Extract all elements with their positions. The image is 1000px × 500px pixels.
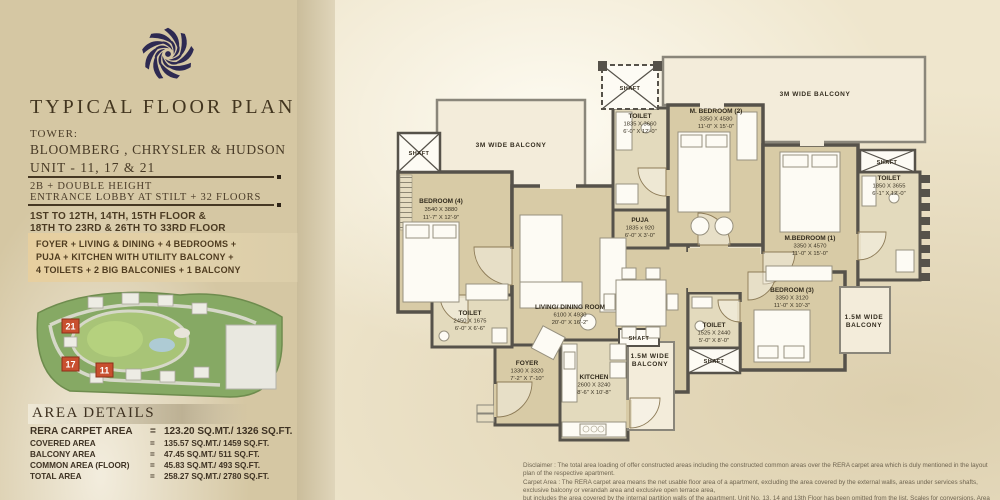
divider-line: [28, 176, 274, 178]
dim-puja-ft: 6'-0" X 3'-0": [625, 233, 655, 239]
area-row-value: 45.83 SQ.MT./ 493 SQ.FT.: [164, 461, 292, 470]
area-row-value: 258.27 SQ.MT./ 2780 SQ.FT.: [164, 472, 292, 481]
dining-table: [616, 280, 666, 326]
dim-mbedroom2-mm: 3350 X 4580: [700, 117, 733, 123]
unit-line: UNIT - 11, 17 & 21: [30, 160, 286, 176]
config-line: ENTRANCE LOBBY AT STILT + 32 FLOORS: [30, 192, 261, 203]
label-shaft-right: SHAFT: [877, 160, 898, 166]
site-pool: [149, 338, 175, 352]
basin: [692, 297, 712, 308]
area-row-label: TOTAL AREA: [30, 472, 148, 481]
floors-line: 1ST TO 12TH, 14TH, 15TH FLOOR &: [30, 211, 226, 223]
label-balcony-b3-2: BALCONY: [846, 322, 882, 329]
dim-foyer-ft: 7'-2" X 7'-10": [510, 376, 543, 382]
label-toilet-left: TOILET: [459, 310, 482, 317]
floor-plan-drawing: 3M WIDE BALCONY 3M WIDE BALCONY SHAFT SH…: [335, 0, 1000, 500]
dim-puja-mm: 1835 x 920: [626, 226, 655, 232]
equals-sign: =: [150, 426, 162, 437]
unit-marker-11-label: 11: [100, 366, 110, 376]
label-shaft-kitchen: SHAFT: [629, 336, 650, 342]
area-row-label: COVERED AREA: [30, 439, 148, 448]
kitchen-sink: [564, 352, 575, 369]
tower-block: TOWER: BLOOMBERG , CHRYSLER & HUDSON UNI…: [30, 128, 286, 176]
brand-logo-icon: [134, 20, 202, 88]
label-balcony-kitchen-2: BALCONY: [632, 361, 668, 368]
stove: [580, 424, 606, 435]
wardrobe-mbedroom2: [737, 112, 757, 160]
dim-toilet-left-mm: 2450 X 1675: [454, 319, 487, 325]
dim-living-ft: 20'-0" X 16'-2": [552, 320, 589, 326]
dim-toilet-left-ft: 6'-0" X 6'-6": [455, 326, 485, 332]
config-block: 2B + DOUBLE HEIGHT ENTRANCE LOBBY AT STI…: [30, 181, 261, 203]
area-row-label: RERA CARPET AREA: [30, 426, 148, 437]
basin: [492, 328, 507, 343]
feature-line: 4 TOILETS + 2 BIG BALCONIES + 1 BALCONY: [36, 264, 298, 277]
unit-marker-21-label: 21: [65, 322, 75, 332]
wardrobe-mbedroom1: [766, 266, 832, 281]
tower-label: TOWER:: [30, 128, 286, 140]
dim-mbedroom1-mm: 3350 X 4570: [794, 244, 827, 250]
area-row-label: BALCONY AREA: [30, 450, 148, 459]
dim-toilet-right-mm: 1850 X 3655: [873, 184, 906, 190]
dim-toilet-top-ft: 6'-0" X 12'-0": [623, 129, 656, 135]
appliance: [610, 362, 626, 378]
divider-line: [28, 204, 274, 206]
floor-plan-brochure: TYPICAL FLOOR PLAN TOWER: BLOOMBERG , CH…: [0, 0, 1000, 500]
site-lawn: [87, 321, 143, 357]
feature-line: PUJA + KITCHEN WITH UTILITY BALCONY +: [36, 251, 298, 264]
area-details-table: RERA CARPET AREA = 123.20 SQ.MT./ 1326 S…: [30, 426, 292, 481]
area-row-value: 47.45 SQ.MT./ 511 SQ.FT.: [164, 450, 292, 459]
config-line: 2B + DOUBLE HEIGHT: [30, 181, 261, 192]
label-balcony-kitchen-1: 1.5M WIDE: [631, 353, 670, 360]
feature-line: FOYER + LIVING & DINING + 4 BEDROOMS +: [36, 238, 298, 251]
label-toilet-right: TOILET: [878, 175, 901, 182]
sidebar: TYPICAL FLOOR PLAN TOWER: BLOOMBERG , CH…: [0, 0, 335, 500]
label-living: LIVING/ DINING ROOM: [535, 304, 605, 311]
disclaimer-line: but includes the area covered by the int…: [523, 495, 995, 500]
site-building-large: [226, 325, 276, 389]
appliance: [610, 344, 626, 360]
disclaimer-line: Carpet Area : The RERA carpet area means…: [523, 479, 995, 496]
shower: [896, 250, 914, 272]
label-shaft-bedroom3: SHAFT: [704, 359, 725, 365]
page-title: TYPICAL FLOOR PLAN: [30, 96, 296, 119]
equals-sign: =: [150, 472, 162, 481]
label-balcony-right: 3M WIDE BALCONY: [780, 91, 851, 98]
area-row-label: COMMON AREA (FLOOR): [30, 461, 148, 470]
label-balcony-b3-1: 1.5M WIDE: [845, 314, 884, 321]
dim-toilet-right-ft: 6'-1" X 12'-0": [872, 191, 905, 197]
equals-sign: =: [150, 450, 162, 459]
label-shaft-top: SHAFT: [620, 86, 641, 92]
wardrobe-bedroom4: [466, 284, 508, 300]
dim-living-mm: 6100 X 4930: [554, 313, 587, 319]
armchair: [715, 217, 733, 235]
label-kitchen: KITCHEN: [580, 374, 609, 381]
disclaimer: Disclaimer : The total area loading of o…: [523, 462, 995, 500]
floors-block: 1ST TO 12TH, 14TH, 15TH FLOOR & 18TH TO …: [30, 211, 226, 234]
label-shaft-left: SHAFT: [409, 151, 430, 157]
label-bedroom3: BEDROOM (3): [770, 287, 814, 294]
armchair: [691, 217, 709, 235]
label-foyer: FOYER: [516, 360, 539, 367]
area-row-value: 135.57 SQ.MT./ 1459 SQ.FT.: [164, 439, 292, 448]
dim-foyer-mm: 1330 X 3320: [511, 369, 544, 375]
dim-toilet-bedroom3-mm: 1525 X 2440: [698, 331, 731, 337]
label-puja: PUJA: [631, 217, 649, 224]
dim-kitchen-mm: 2600 X 3240: [578, 383, 611, 389]
label-mbedroom1: M.BEDROOM (1): [785, 235, 836, 242]
dim-bedroom3-ft: 11'-0" X 10'-3": [774, 303, 810, 309]
tower-names: BLOOMBERG , CHRYSLER & HUDSON: [30, 142, 286, 158]
unit-marker-17-label: 17: [65, 360, 75, 370]
dim-bedroom4-mm: 3540 X 3880: [425, 207, 458, 213]
site-clubhouse: [174, 328, 190, 338]
label-toilet-top: TOILET: [629, 113, 652, 120]
area-details-title: AREA DETAILS: [28, 404, 248, 422]
dim-mbedroom2-ft: 11'-0" X 15'-0": [698, 124, 734, 130]
shaft-top: [598, 61, 662, 109]
dim-bedroom4-ft: 11'-7" X 12'-9": [423, 215, 459, 221]
dim-kitchen-ft: 8'-6" X 10'-8": [577, 390, 610, 396]
label-bedroom4: BEDROOM (4): [419, 198, 463, 205]
equals-sign: =: [150, 461, 162, 470]
dim-toilet-top-mm: 1835 X 3660: [624, 122, 657, 128]
site-master-plan: 21 17 11: [30, 283, 290, 405]
shower: [616, 184, 638, 204]
area-row-value: 123.20 SQ.MT./ 1326 SQ.FT.: [164, 426, 292, 437]
dim-mbedroom1-ft: 11'-0" X 15'-0": [792, 251, 828, 257]
disclaimer-line: Disclaimer : The total area loading of o…: [523, 462, 995, 479]
label-mbedroom2: M. BEDROOM (2): [690, 108, 743, 115]
dim-toilet-bedroom3-ft: 5'-0" X 8'-0": [699, 338, 729, 344]
label-toilet-bedroom3: TOILET: [703, 322, 726, 329]
wc: [439, 331, 449, 341]
dim-bedroom3-mm: 3350 X 3120: [776, 296, 809, 302]
label-balcony-left: 3M WIDE BALCONY: [476, 142, 547, 149]
area-details-header: AREA DETAILS: [28, 404, 248, 424]
equals-sign: =: [150, 439, 162, 448]
entrance-steps: [477, 405, 494, 422]
unit-features: FOYER + LIVING & DINING + 4 BEDROOMS + P…: [28, 233, 298, 282]
